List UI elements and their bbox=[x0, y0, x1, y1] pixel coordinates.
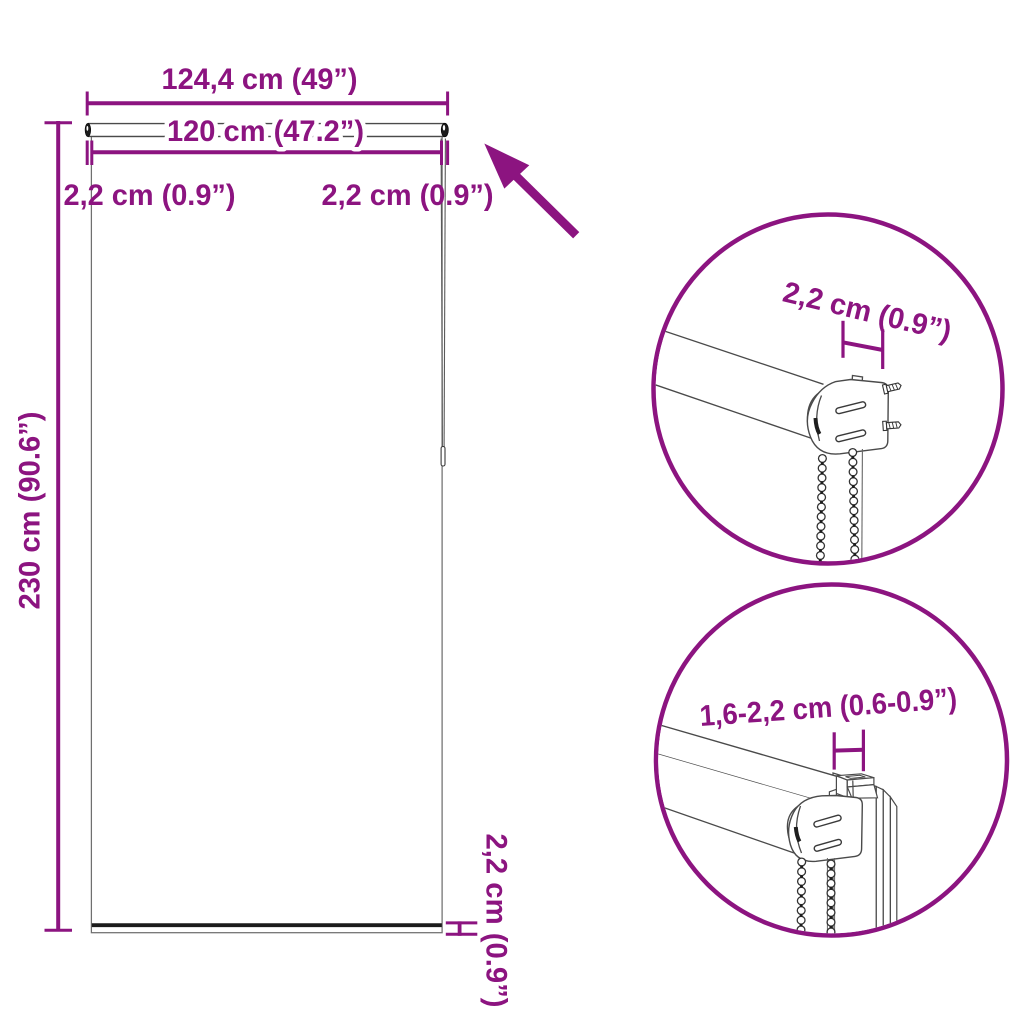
svg-text:230 cm (90.6”): 230 cm (90.6”) bbox=[14, 412, 47, 610]
svg-text:120 cm (47.2”): 120 cm (47.2”) bbox=[167, 115, 364, 148]
svg-text:124,4 cm (49”): 124,4 cm (49”) bbox=[162, 63, 358, 96]
svg-text:2,2 cm (0.9”): 2,2 cm (0.9”) bbox=[322, 179, 494, 212]
svg-text:2,2 cm (0.9”): 2,2 cm (0.9”) bbox=[480, 834, 513, 1008]
svg-text:2,2 cm (0.9”): 2,2 cm (0.9”) bbox=[64, 179, 236, 212]
